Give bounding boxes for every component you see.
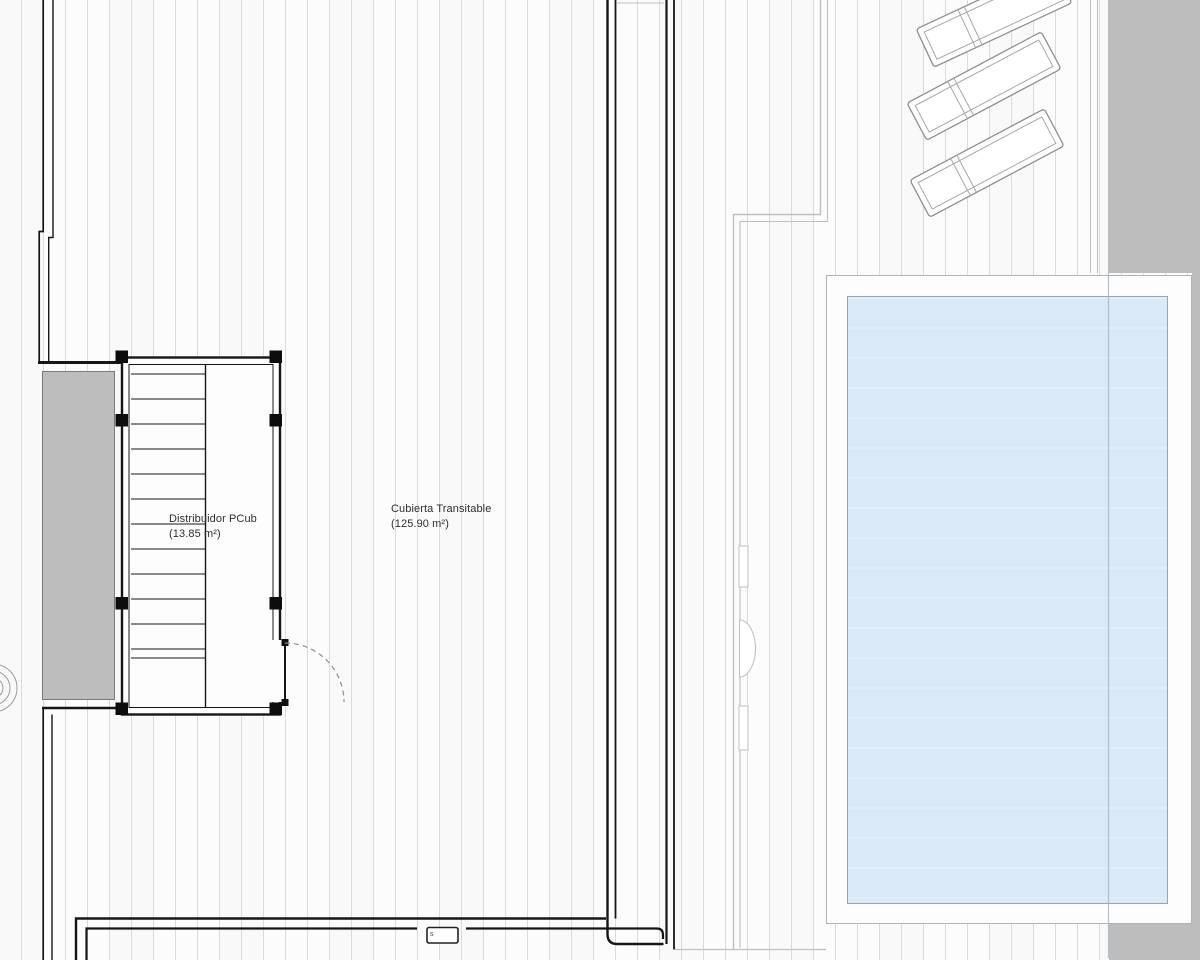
plan-linework: s xyxy=(0,0,1200,960)
bottom-boundary-outer xyxy=(76,919,606,960)
perimeter-wall-topleft-outer xyxy=(39,0,43,362)
sun-loungers xyxy=(907,0,1072,217)
door-hinge-bottom xyxy=(282,699,289,706)
door-swing-arc xyxy=(285,643,344,702)
bottom-boundary-inner xyxy=(87,929,664,960)
deck-step-boundary-outer xyxy=(734,0,821,950)
wall-fixture-lower xyxy=(739,706,748,750)
edge-tree-symbol xyxy=(0,664,17,712)
perimeter-wall-topleft-inner xyxy=(49,0,53,362)
terrace-name: Cubierta Transitable xyxy=(391,502,491,517)
stair-room-area: (13.85 m²) xyxy=(169,527,257,542)
utility-box-label: s xyxy=(430,931,434,938)
door-opening xyxy=(265,640,285,702)
terrace-area: (125.90 m²) xyxy=(391,517,491,532)
terrace-label: Cubierta Transitable (125.90 m²) xyxy=(391,502,491,531)
deck-step-boundary-inner xyxy=(740,0,828,948)
deck-edge-joints xyxy=(1091,0,1098,273)
stair-room-label: Distribuidor PCub (13.85 m²) xyxy=(169,512,257,541)
roof-plan: s xyxy=(0,0,1200,960)
wall-fixture-halfround xyxy=(740,620,756,677)
wall-fixture-upper xyxy=(739,546,748,587)
stair-room-name: Distribuidor PCub xyxy=(169,512,257,527)
utility-box: s xyxy=(427,928,458,944)
